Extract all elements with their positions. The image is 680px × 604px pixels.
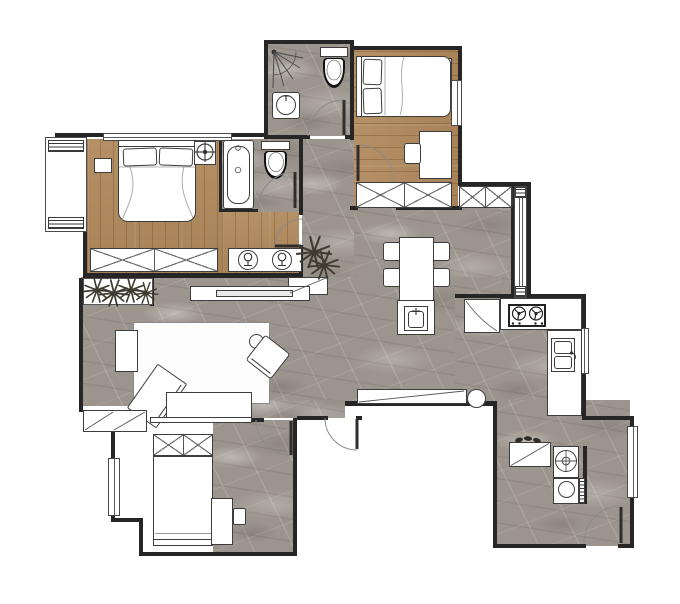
dining-sideboard: [459, 186, 512, 208]
wardrobe-x-panel: [184, 435, 213, 455]
dining-window-hatch-top: [515, 187, 526, 198]
master-pillow-right: [159, 147, 194, 166]
wall-vestibule-south-jamb: [356, 416, 362, 420]
wall-entry-south-right: [618, 544, 634, 548]
bedroom2-desk: [419, 131, 452, 179]
wall-bedroom3-east: [293, 418, 297, 556]
master-wardrobe: [90, 248, 218, 272]
wall-entry-west: [493, 403, 497, 548]
window-ledge-cabinet: [357, 389, 467, 404]
wardrobe-x-panel: [357, 183, 405, 207]
entry-window: [627, 426, 638, 498]
bedroom3-chair: [233, 508, 246, 525]
bedroom3-window: [108, 458, 120, 516]
bedroom3-footboard: [153, 539, 213, 546]
master-nightstand: [94, 158, 112, 173]
wardrobe-x-panel: [154, 435, 184, 455]
bedroom2-wardrobe: [356, 182, 452, 208]
dining-window-hatch-bottom: [515, 286, 526, 297]
bay-window-sill-top: [48, 140, 84, 152]
chaise-base: [150, 417, 252, 423]
wall-master-east-upper: [299, 137, 303, 215]
wall-bedroom3-west-lower: [139, 522, 143, 556]
wall-bedroom3-south: [139, 552, 297, 556]
round-column: [467, 389, 486, 408]
wardrobe-x-panel: [155, 249, 218, 271]
wardrobe-x-panel: [91, 249, 155, 271]
bench-cabinet: [83, 410, 147, 432]
washer-hatch: [579, 478, 585, 504]
master-pillow-left: [123, 147, 158, 166]
fridge: [464, 299, 500, 333]
topbath-sink-basin: [276, 95, 296, 115]
dining-window-column: [514, 186, 527, 298]
bedroom2-window: [451, 80, 462, 126]
floor-plan: [0, 0, 680, 604]
vanity-sink-right: [272, 250, 292, 270]
bedroom2-pillow-bottom: [363, 88, 383, 115]
bedroom2-pillow-top: [363, 59, 383, 86]
cooktop: [508, 304, 546, 327]
bedroom3-wardrobe: [153, 434, 213, 456]
dining-chair-4: [432, 268, 450, 287]
sideboard-x-panel: [460, 187, 486, 207]
vanity-sink-left: [238, 250, 258, 270]
wall-window-column-east: [527, 182, 531, 300]
kitchen-sink-basin-top: [554, 341, 572, 354]
bedroom3-desk: [211, 498, 233, 545]
wall-bedroom2-north: [350, 46, 462, 50]
dining-chair-3: [432, 242, 450, 261]
master-headboard: [118, 140, 196, 147]
topbath-toilet-tank: [320, 47, 348, 57]
wall-topbath-south-right: [345, 135, 354, 139]
wall-entry-south-left: [497, 544, 586, 548]
washer-drum: [558, 481, 575, 498]
planter-box: [83, 278, 153, 305]
kitchen-sink-basin-bottom: [554, 356, 572, 369]
shoe-cabinet: [509, 442, 551, 467]
master-toilet-tank: [261, 141, 290, 150]
tv: [216, 290, 293, 297]
island-basin-inner: [408, 311, 424, 328]
bedroom3-bed-line: [155, 533, 211, 534]
wall-vestibule-south-left: [297, 416, 328, 420]
hallway-floor: [302, 139, 354, 300]
entry-round-basin: [555, 450, 577, 472]
master-fan-box: [194, 141, 216, 165]
wall-topbath-south-left: [264, 135, 310, 139]
bathtub-inner: [227, 146, 250, 204]
wall-master-west-lower: [83, 225, 87, 280]
chaise-seat: [166, 392, 252, 418]
bay-window-sill-bottom: [48, 217, 84, 229]
sideboard-x-panel: [486, 187, 511, 207]
wall-masterbath-west: [219, 139, 222, 212]
side-table: [115, 330, 138, 372]
bedroom2-chair: [404, 143, 421, 164]
dining-table: [399, 237, 434, 301]
wall-entry-northeast: [582, 416, 634, 420]
wall-topbath-north: [264, 40, 354, 44]
wall-masterbath-south: [219, 209, 258, 212]
balcony-door-arc: [325, 418, 357, 450]
wall-topbath-west: [264, 40, 268, 139]
wardrobe-x-panel: [405, 183, 452, 207]
bedroom2-headboard: [356, 56, 362, 117]
wall-bath-bed2-divider: [350, 40, 354, 140]
